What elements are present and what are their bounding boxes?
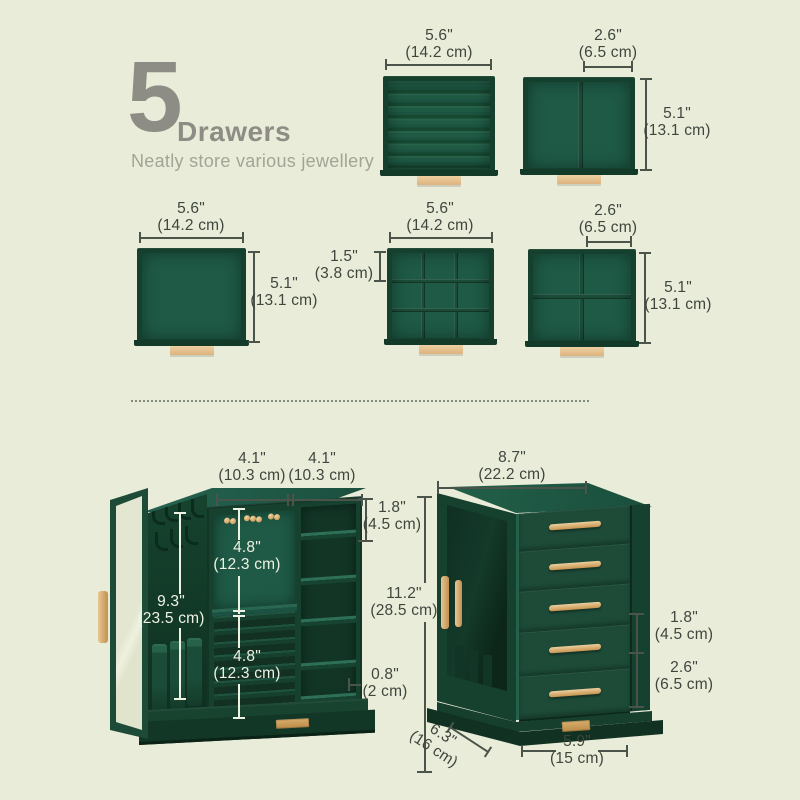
dim-inches: 4.8" <box>202 649 292 666</box>
drawer-handle <box>417 176 461 185</box>
dim-tick <box>292 494 294 506</box>
dim-tick <box>287 494 289 506</box>
dim-tick <box>233 717 245 719</box>
necklace-hook <box>155 532 168 551</box>
velvet-lining <box>142 253 241 339</box>
dim-tick <box>358 540 373 542</box>
dim-label-closed-height: 11.2" (28.5 cm) <box>359 586 449 619</box>
divider <box>421 253 425 338</box>
dim-label-grid9-cell: 1.5" (3.8 cm) <box>299 249 389 282</box>
dim-label-bottom-drawer-height: 2.6" (6.5 cm) <box>639 660 729 693</box>
dim-cm: (14.2 cm) <box>394 45 484 62</box>
dim-cm: (12.3 cm) <box>202 557 292 574</box>
drawer-handle <box>549 561 601 571</box>
dim-tick <box>585 481 587 494</box>
title-word: Drawers <box>177 116 291 148</box>
section-divider <box>131 400 589 402</box>
dim-tick <box>174 512 186 514</box>
divider <box>579 254 584 340</box>
dim-cm: (13.1 cm) <box>633 297 723 314</box>
dim-inches: 2.6" <box>639 660 729 677</box>
dim-inches: 1.5" <box>299 249 389 266</box>
door-handle <box>98 591 108 643</box>
velvet-lining <box>392 253 489 338</box>
dim-tick <box>639 252 651 254</box>
dim-label-lower-compartment: 4.8" (12.3 cm) <box>202 649 292 682</box>
dim-label-interior-height: 9.3" (23.5 cm) <box>126 594 216 627</box>
dim-label-grid4-width: 2.6" (6.5 cm) <box>563 203 653 236</box>
pocket-silhouette <box>455 645 464 700</box>
dim-line <box>217 499 362 501</box>
dim-line <box>238 617 240 648</box>
dim-label-two-height: 5.1" (13.1 cm) <box>632 106 722 139</box>
door-pockets <box>151 638 204 712</box>
dim-tick <box>491 232 493 243</box>
divider <box>454 253 458 338</box>
dim-tick <box>417 771 432 773</box>
title-number: 5 <box>127 55 183 140</box>
dim-cm: (14.2 cm) <box>395 218 485 235</box>
drawer-handle <box>549 521 601 531</box>
gold-knob <box>274 514 280 520</box>
dim-tick <box>417 496 432 498</box>
dim-label-drawer-height: 1.8" (4.5 cm) <box>639 610 729 643</box>
dim-cm: (6.5 cm) <box>563 220 653 237</box>
dim-inches: 5.1" <box>633 280 723 297</box>
drawer-handle <box>170 346 214 355</box>
dim-cm: (3.8 cm) <box>299 266 389 283</box>
dim-cm: (23.5 cm) <box>126 611 216 628</box>
dim-tick <box>640 169 652 171</box>
dim-label-base-height: 0.8" (2 cm) <box>340 667 430 700</box>
velvet-lining <box>533 254 631 340</box>
dim-label-open-width: 5.6" (14.2 cm) <box>146 201 236 234</box>
dim-line <box>238 509 240 540</box>
dim-tick <box>242 232 244 243</box>
dim-cm: (12.3 cm) <box>202 666 292 683</box>
drawer-handle <box>560 347 604 356</box>
velvet-lining <box>528 82 630 168</box>
drawer-handle <box>419 345 463 354</box>
open-drawer-figure <box>137 248 246 346</box>
open-cabinet-front <box>207 496 362 717</box>
ring-drawer-figure <box>383 76 495 176</box>
dim-line <box>586 241 632 243</box>
dim-line <box>437 487 587 489</box>
dim-inches: 8.7" <box>467 450 557 467</box>
dim-tick <box>139 232 141 243</box>
dim-cm: (6.5 cm) <box>639 677 729 694</box>
drawer-handle <box>549 602 601 612</box>
dim-tick <box>389 232 391 243</box>
dim-inches: 5.1" <box>632 106 722 123</box>
dim-tick <box>626 745 628 757</box>
dim-tick <box>586 236 588 247</box>
dim-label-closed-width: 8.7" (22.2 cm) <box>467 450 557 483</box>
dim-cm: (14.2 cm) <box>146 218 236 235</box>
dim-line <box>179 513 181 594</box>
pocket-silhouette <box>469 650 478 705</box>
drawer-handle <box>557 175 601 184</box>
pocket <box>152 644 167 712</box>
divider <box>578 82 583 168</box>
divider <box>392 279 489 283</box>
dim-label-two-width: 2.6" (6.5 cm) <box>563 28 653 61</box>
dim-cm: (6.5 cm) <box>563 45 653 62</box>
dim-inches: 5.6" <box>395 201 485 218</box>
side-door-handle <box>455 580 462 627</box>
logo-nameplate <box>562 720 591 732</box>
dim-line <box>385 64 492 66</box>
title-subtitle: Neatly store various jewellery <box>131 151 374 172</box>
necklace-hook <box>191 499 204 518</box>
dim-label-grid9-width: 5.6" (14.2 cm) <box>395 201 485 234</box>
dim-inches: 5.6" <box>146 201 236 218</box>
dim-cm: (2 cm) <box>340 684 430 701</box>
drawer-handle <box>549 688 601 698</box>
dim-tick <box>216 494 218 506</box>
closed-cabinet-front <box>516 504 650 720</box>
dim-line <box>583 66 633 68</box>
dim-label-grid4-height: 5.1" (13.1 cm) <box>633 280 723 313</box>
product-dimension-infographic: 5 Drawers Neatly store various jewellery… <box>0 0 800 800</box>
dim-inches: 2.6" <box>563 203 653 220</box>
necklace-hook <box>170 529 183 548</box>
dim-line <box>636 614 638 708</box>
dim-cm: (15 cm) <box>532 751 622 768</box>
dim-tick <box>490 59 492 70</box>
dim-tick <box>174 698 186 700</box>
shelf <box>301 575 356 586</box>
dim-tick <box>233 508 245 510</box>
dim-inches: 0.8" <box>340 667 430 684</box>
dim-cm: (4.5 cm) <box>639 627 729 644</box>
dim-inches: 9.3" <box>126 594 216 611</box>
dim-line <box>238 684 240 719</box>
dim-label-upper-compartment: 4.8" (12.3 cm) <box>202 540 292 573</box>
dim-line <box>424 497 426 583</box>
gold-knob <box>230 518 236 524</box>
dim-tick <box>248 251 260 253</box>
dim-cm: (28.5 cm) <box>359 603 449 620</box>
gold-knob <box>256 516 262 522</box>
dim-label-ring-width: 5.6" (14.2 cm) <box>394 28 484 61</box>
dim-inches: 5.9" <box>532 734 622 751</box>
dim-inches: 4.8" <box>202 540 292 557</box>
dim-cm: (13.1 cm) <box>239 293 329 310</box>
dim-label-top-right: 4.1" (10.3 cm) <box>277 451 367 484</box>
dim-label-bottom-width: 5.9" (15 cm) <box>532 734 622 767</box>
dim-line <box>179 628 181 700</box>
dim-cm: (10.3 cm) <box>277 468 367 485</box>
dim-line <box>238 576 240 614</box>
dim-inches: 11.2" <box>359 586 449 603</box>
two-compartment-drawer-figure <box>523 77 635 175</box>
dim-tick <box>385 59 387 70</box>
dim-tick <box>631 61 633 72</box>
nine-grid-drawer-figure <box>387 248 494 345</box>
ring-rolls-lining <box>388 81 490 169</box>
dim-inches: 5.6" <box>394 28 484 45</box>
dim-tick <box>583 61 585 72</box>
drawer-stack <box>519 505 630 719</box>
dim-inches: 4.1" <box>277 451 367 468</box>
drawer-front <box>519 668 630 721</box>
dim-tick <box>233 615 245 617</box>
dim-tick <box>630 236 632 247</box>
dim-tick <box>248 341 260 343</box>
dim-tick <box>629 706 644 708</box>
pocket-silhouette <box>483 655 492 710</box>
logo-nameplate <box>276 718 309 729</box>
necklace-hook <box>185 526 198 545</box>
dim-line <box>139 237 244 239</box>
dim-cm: (22.2 cm) <box>467 467 557 484</box>
dim-inches: 1.8" <box>639 610 729 627</box>
dim-tick <box>233 610 245 612</box>
dim-inches: 2.6" <box>563 28 653 45</box>
drawer-handle <box>549 644 601 654</box>
divider <box>392 308 489 312</box>
dim-tick <box>629 652 644 654</box>
dim-tick <box>521 745 523 757</box>
shelf <box>301 616 356 627</box>
four-grid-drawer-figure <box>528 249 636 347</box>
dim-cm: (13.1 cm) <box>632 123 722 140</box>
divider <box>533 294 631 299</box>
pocket <box>187 638 202 706</box>
dim-tick <box>640 78 652 80</box>
dim-tick <box>484 746 492 757</box>
dim-tick <box>639 342 651 344</box>
dim-tick <box>437 481 439 494</box>
dim-line <box>389 237 493 239</box>
